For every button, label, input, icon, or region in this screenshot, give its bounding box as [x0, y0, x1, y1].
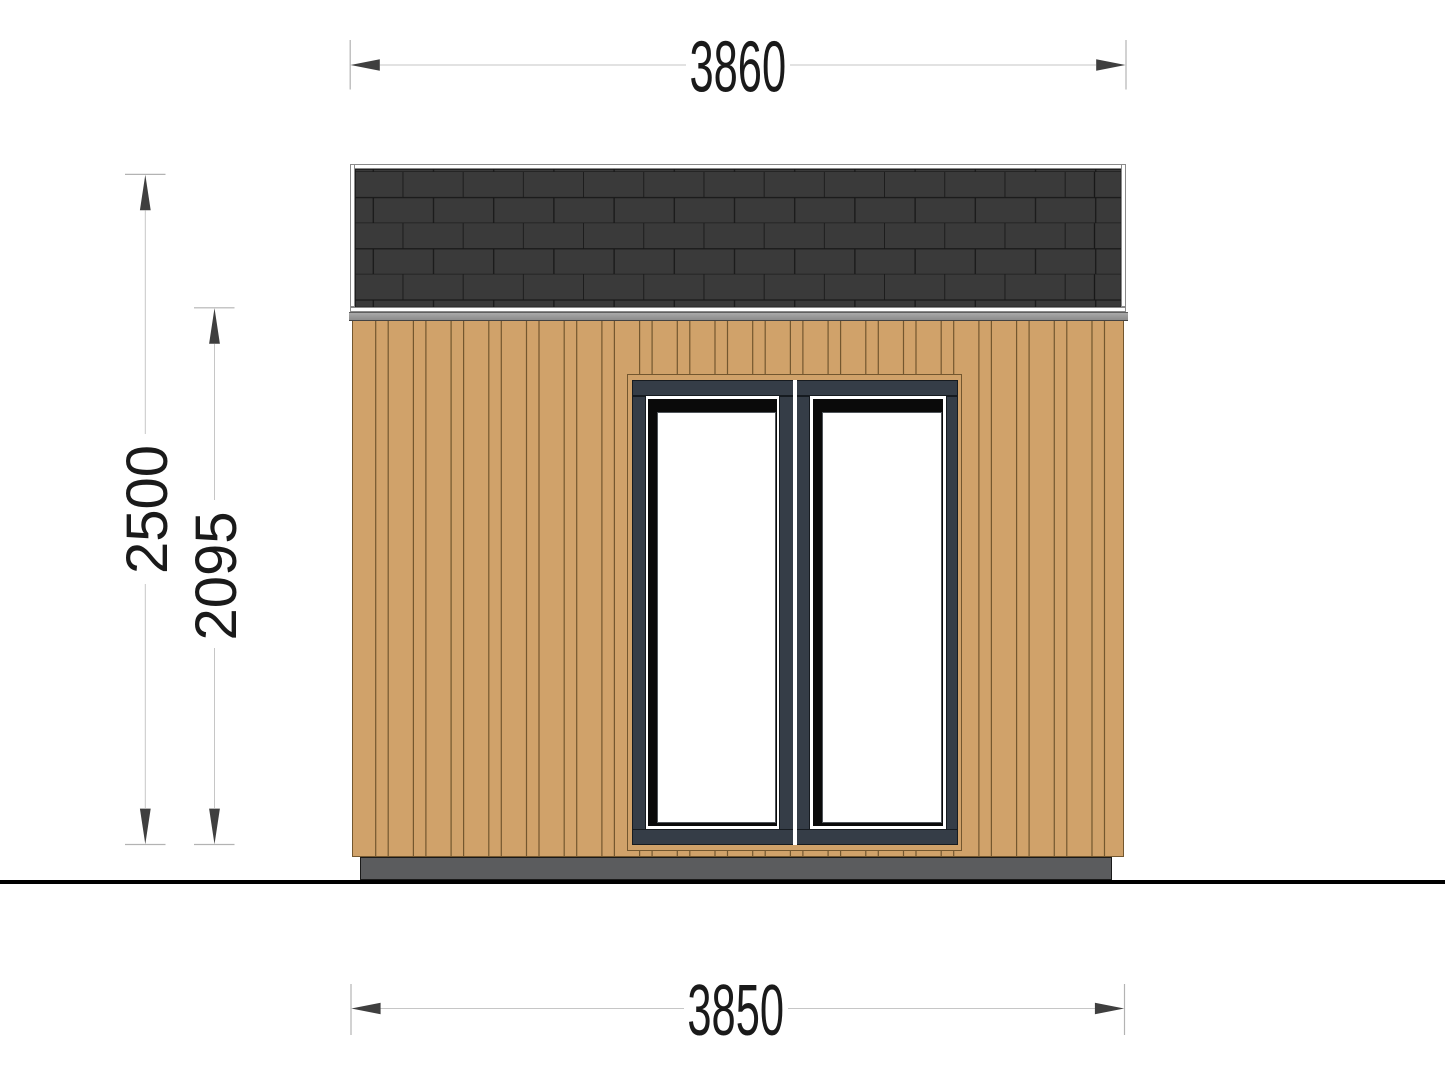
svg-text:2095: 2095	[184, 511, 249, 640]
svg-text:2500: 2500	[115, 445, 180, 574]
svg-text:3850: 3850	[687, 969, 784, 1050]
svg-text:3860: 3860	[689, 26, 786, 107]
